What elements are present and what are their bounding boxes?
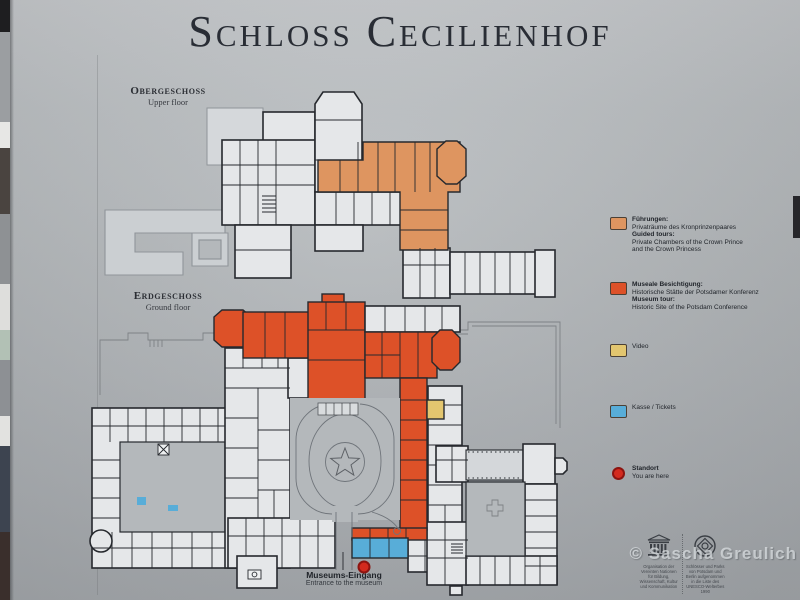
legend-guided-line-de: Privaträume des Kronprinzenpaares xyxy=(632,224,800,232)
pergola xyxy=(466,450,523,480)
photo-right-gap xyxy=(793,196,800,238)
legend-museum-title-en: Museum tour: xyxy=(632,296,800,304)
cecilienhof-sign-photo: Schloss Cecilienhof Obergeschoss Upper f… xyxy=(0,0,800,600)
ground-floor-label-en: Ground floor xyxy=(113,302,223,312)
legend-tickets-label: Kasse / Tickets xyxy=(632,404,800,412)
video-room xyxy=(427,400,444,419)
accessibility-icon xyxy=(137,497,146,505)
garden-courtyard xyxy=(466,482,525,556)
museum-entrance-label: Museums-Eingang Entrance to the museum xyxy=(283,570,405,587)
legend-standort-de: Standort xyxy=(632,465,800,473)
museum-tower xyxy=(432,330,460,370)
photographer-watermark: © Sascha Greulich xyxy=(567,544,797,564)
legend-guided-title-de: Führungen: xyxy=(632,216,800,224)
great-hall xyxy=(308,302,365,403)
hall-steps xyxy=(318,403,358,415)
ground-floor-plan xyxy=(90,294,567,595)
ticket-area xyxy=(352,538,408,558)
standort-dot-icon xyxy=(612,467,625,480)
upper-floor-label-en: Upper floor xyxy=(113,97,223,107)
legend-standort-en: You are here xyxy=(632,473,800,481)
world-heritage-column: Schlösser und Parks von Potsdam und Berl… xyxy=(682,534,729,594)
museum-entrance-de: Museums-Eingang xyxy=(283,570,405,580)
heritage-caption: Schlösser und Parks von Potsdam und Berl… xyxy=(683,564,729,594)
upper-floor-label: Obergeschoss Upper floor xyxy=(113,85,223,107)
terrace-outline-left xyxy=(100,333,222,395)
guided-tours-tower xyxy=(437,141,466,184)
upper-floor-plan xyxy=(105,92,555,298)
legend-guided-title-en: Guided tours: xyxy=(632,231,800,239)
video-swatch xyxy=(610,344,627,357)
legend-guided-line-en1: Private Chambers of the Crown Prince xyxy=(632,239,800,247)
museum-tour-swatch xyxy=(610,282,627,295)
neighbour-board-strip xyxy=(0,0,10,600)
legend-museum-line-en: Historic Site of the Potsdam Conference xyxy=(632,304,800,312)
ground-floor-label: Erdgeschoss Ground floor xyxy=(113,290,223,312)
legend-video-label: Video xyxy=(632,343,800,351)
legend-guided-line-en2: and the Crown Princess xyxy=(632,246,800,254)
wc-icon xyxy=(168,505,178,511)
museum-corridor xyxy=(400,378,427,530)
projector-icon xyxy=(248,570,261,579)
legend-museum-title-de: Museale Besichtigung: xyxy=(632,281,800,289)
unesco-caption: Organisation der Vereinten Nationen für … xyxy=(636,564,682,589)
ground-floor-label-de: Erdgeschoss xyxy=(113,290,223,302)
unesco-column: Organisation der Vereinten Nationen für … xyxy=(636,534,682,594)
tickets-swatch xyxy=(610,405,627,418)
legend-museum-line-de: Historische Stätte der Potsdamer Konfere… xyxy=(632,289,800,297)
sign-title: Schloss Cecilienhof xyxy=(70,6,730,57)
museum-entrance-en: Entrance to the museum xyxy=(283,580,405,587)
round-tower xyxy=(90,530,112,552)
upper-floor-label-de: Obergeschoss xyxy=(113,85,223,97)
guided-tours-swatch xyxy=(610,217,627,230)
board-edge-shadow xyxy=(10,0,14,600)
unesco-footer: Organisation der Vereinten Nationen für … xyxy=(636,534,728,594)
